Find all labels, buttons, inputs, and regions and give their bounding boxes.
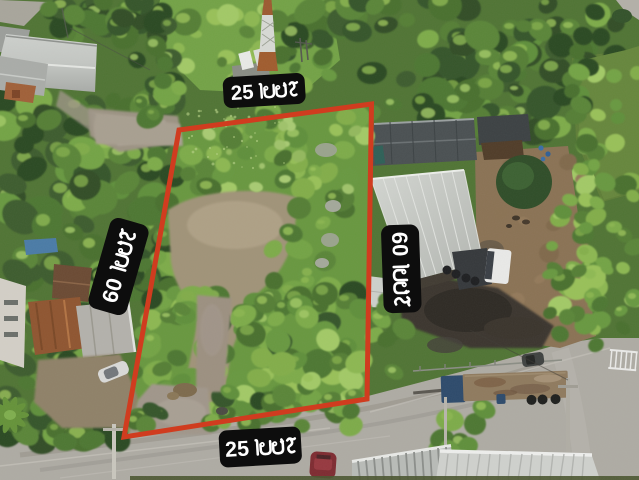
- svg-text:25: 25: [230, 81, 254, 105]
- svg-text:60: 60: [387, 231, 413, 256]
- svg-text:25: 25: [224, 436, 249, 462]
